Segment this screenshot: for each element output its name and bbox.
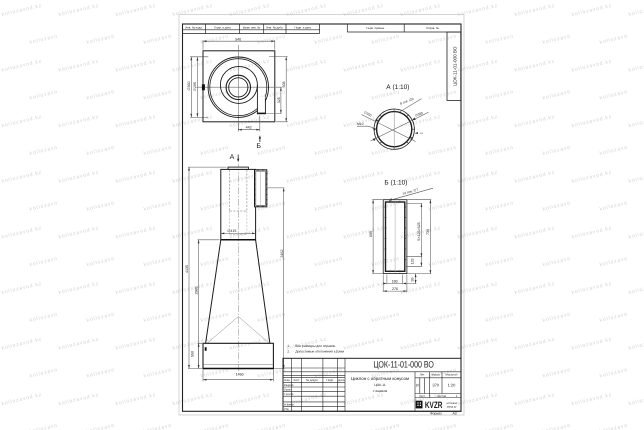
svg-text:Утв.: Утв. <box>284 407 290 411</box>
svg-text:730: 730 <box>426 229 430 235</box>
svg-text:Инв. № подл.: Инв. № подл. <box>185 25 203 29</box>
svg-text:∅205: ∅205 <box>193 82 197 91</box>
svg-text:2985: 2985 <box>194 287 198 295</box>
svg-text:KVZR: KVZR <box>425 400 443 410</box>
svg-text:ЦОК-11-01-000 ВО: ЦОК-11-01-000 ВО <box>373 359 434 369</box>
svg-text:442: 442 <box>246 126 252 130</box>
svg-text:Листов: Листов <box>437 394 447 398</box>
svg-text:3162: 3162 <box>280 250 284 258</box>
svg-text:Подп. и дата: Подп. и дата <box>214 25 231 29</box>
svg-text:508: 508 <box>282 82 286 88</box>
svg-text:1.: 1. <box>287 344 290 348</box>
svg-text:Инв. № дубл.: Инв. № дубл. <box>266 25 284 29</box>
svg-text:ЦОК-11: ЦОК-11 <box>374 383 386 387</box>
svg-text:2.: 2. <box>287 349 290 353</box>
svg-text:Формат: Формат <box>430 412 442 416</box>
svg-text:ЦОК-11-01-000 ВО: ЦОК-11-01-000 ВО <box>452 46 457 86</box>
svg-text:Разраб.: Разраб. <box>284 383 294 387</box>
svg-text:540: 540 <box>235 37 241 41</box>
svg-text:М10: М10 <box>357 122 364 126</box>
svg-text:55: 55 <box>411 278 415 282</box>
svg-text:4135: 4135 <box>185 265 189 273</box>
svg-text:Изм.: Изм. <box>284 378 290 382</box>
svg-text:завод.ру: завод.ру <box>447 405 458 408</box>
svg-text:1460: 1460 <box>236 373 244 377</box>
svg-text:Масштаб: Масштаб <box>446 373 458 377</box>
svg-text:Взам. инв. №: Взам. инв. № <box>243 25 260 29</box>
svg-text:125: 125 <box>410 259 414 265</box>
svg-text:с ящиком: с ящиком <box>373 389 388 393</box>
svg-text:Лист: Лист <box>293 378 300 382</box>
svg-text:Перв. примен.: Перв. примен. <box>366 26 385 30</box>
svg-text:5×125=625: 5×125=625 <box>417 222 421 240</box>
svg-text:Подп.: Подп. <box>326 378 334 382</box>
svg-text:Б (1:10): Б (1:10) <box>384 179 407 186</box>
svg-text:370: 370 <box>432 383 439 388</box>
svg-text:А3: А3 <box>453 412 457 416</box>
svg-text:180: 180 <box>392 279 398 283</box>
svg-text:Масса: Масса <box>432 373 441 377</box>
svg-text:Циклон с обратным конусом: Циклон с обратным конусом <box>351 376 409 381</box>
svg-text:276: 276 <box>392 287 398 291</box>
svg-text:Дата: Дата <box>338 378 345 382</box>
svg-text:∅360: ∅360 <box>187 81 191 90</box>
svg-text:А: А <box>230 154 235 161</box>
svg-text:Справ. №: Справ. № <box>426 26 439 30</box>
svg-text:325: 325 <box>277 97 281 103</box>
svg-text:Б: Б <box>256 143 261 150</box>
svg-text:Лист: Лист <box>419 394 426 398</box>
svg-text:∅415: ∅415 <box>227 229 236 233</box>
svg-text:Т.контр.: Т.контр. <box>284 392 294 396</box>
svg-text:695: 695 <box>369 231 373 237</box>
svg-text:Допустимые отклонения ±10мм: Допустимые отклонения ±10мм <box>295 349 344 353</box>
svg-text:И: И <box>416 383 419 387</box>
svg-text:Подп. и дата: Подп. и дата <box>295 25 312 29</box>
svg-text:Пров.: Пров. <box>284 388 292 392</box>
svg-text:1:20: 1:20 <box>448 383 457 388</box>
svg-text:№ докум.: № докум. <box>306 378 319 382</box>
svg-text:Все размеры для справок.: Все размеры для справок. <box>295 344 336 348</box>
svg-text:А (1:10): А (1:10) <box>386 84 409 91</box>
svg-text:Лит.: Лит. <box>420 373 425 377</box>
svg-text:550: 550 <box>190 351 194 357</box>
svg-text:Н.контр.: Н.контр. <box>284 403 295 407</box>
